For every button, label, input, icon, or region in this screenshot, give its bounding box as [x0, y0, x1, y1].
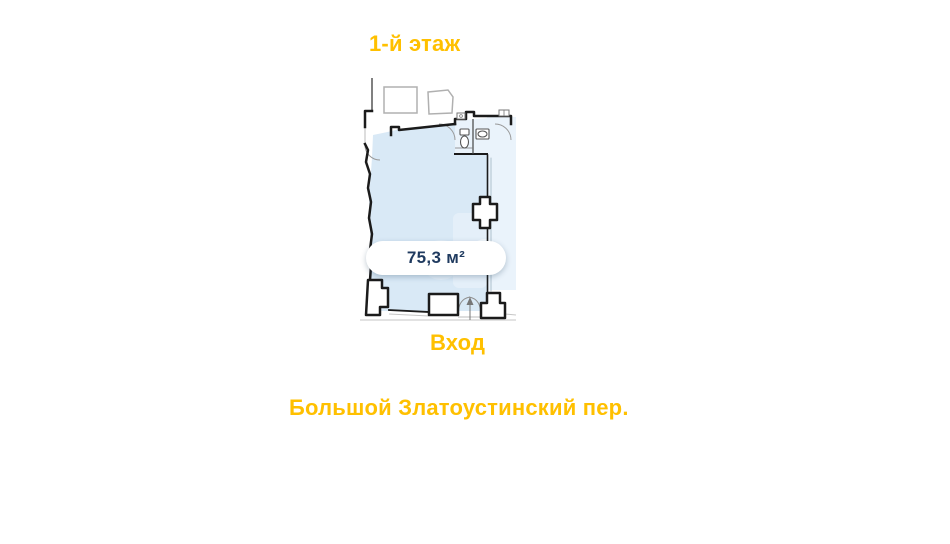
floor-title: 1-й этаж	[369, 32, 460, 56]
entrance-label: Вход	[430, 331, 485, 355]
floor-plan-drawing	[358, 78, 520, 326]
floor-plan[interactable]: 75,3 м²	[358, 78, 520, 326]
sink-icon	[476, 129, 489, 139]
area-label: 75,3 м²	[407, 248, 465, 268]
column-bottom-middle	[429, 294, 458, 315]
area-badge[interactable]: 75,3 м²	[366, 241, 506, 275]
street-label: Большой Златоустинский пер.	[289, 396, 629, 420]
neighbor-outlines	[384, 87, 453, 114]
toilet-icon	[460, 129, 469, 148]
